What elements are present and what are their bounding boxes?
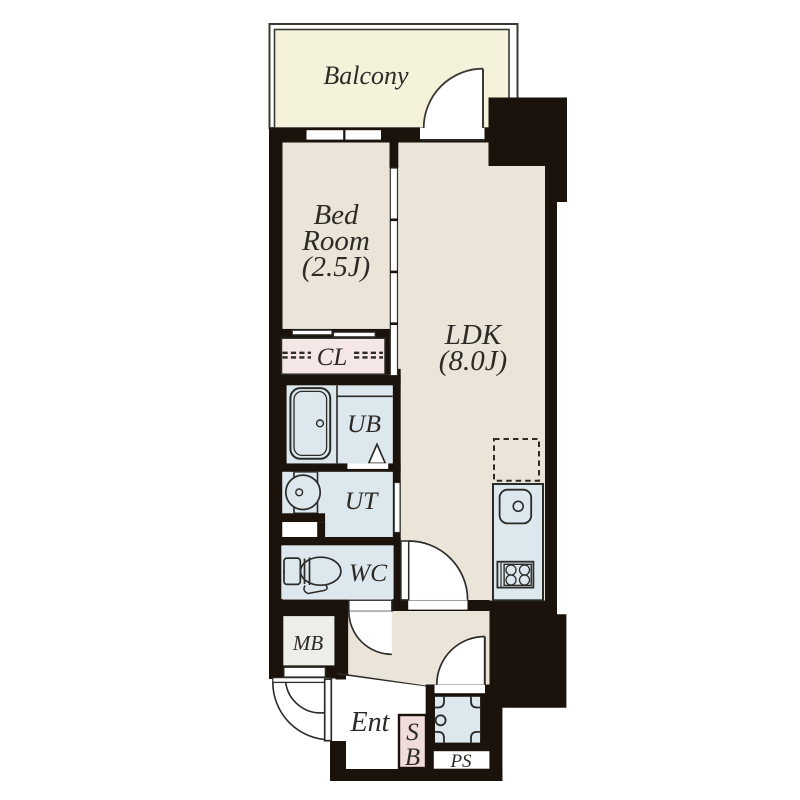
svg-text:(8.0J): (8.0J) (439, 345, 507, 377)
svg-text:WC: WC (349, 558, 388, 587)
svg-text:MB: MB (292, 631, 323, 655)
svg-text:S: S (406, 719, 419, 746)
svg-text:(2.5J): (2.5J) (302, 251, 370, 283)
svg-text:UB: UB (347, 409, 381, 438)
svg-text:CL: CL (317, 344, 348, 371)
svg-text:B: B (405, 744, 420, 771)
svg-text:PS: PS (449, 751, 472, 772)
svg-text:Ent: Ent (350, 707, 391, 738)
svg-text:Balcony: Balcony (323, 61, 409, 90)
svg-text:UT: UT (345, 486, 379, 515)
